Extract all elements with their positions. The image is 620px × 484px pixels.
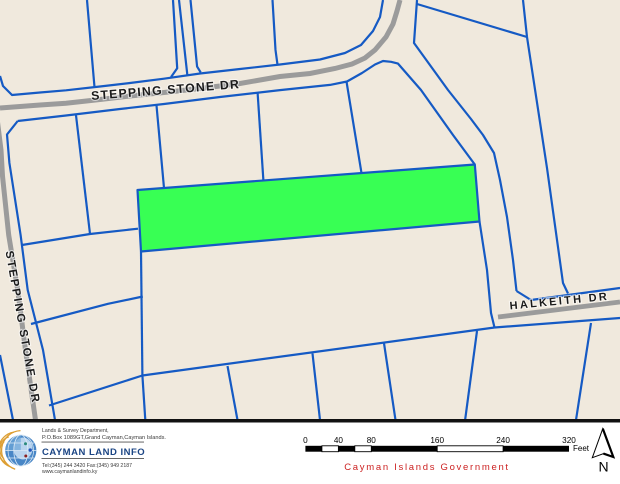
svg-text:240: 240 [496, 436, 510, 445]
svg-text:www.caymanlandinfo.ky: www.caymanlandinfo.ky [42, 469, 98, 475]
svg-text:Lands & Survey Department,: Lands & Survey Department, [42, 428, 109, 434]
svg-text:160: 160 [430, 436, 444, 445]
svg-text:CAYMAN LAND INFO: CAYMAN LAND INFO [42, 447, 145, 458]
svg-text:40: 40 [334, 436, 344, 445]
svg-text:N: N [599, 459, 609, 475]
svg-text:80: 80 [367, 436, 377, 445]
svg-text:0: 0 [303, 436, 308, 445]
svg-text:Feet: Feet [573, 444, 590, 453]
svg-text:P.O.Box 1089GT,Grand Cayman,Ca: P.O.Box 1089GT,Grand Cayman,Cayman Islan… [42, 435, 166, 441]
svg-text:Tel:(345) 244 3420 Fax:(345): Tel:(345) 244 3420 Fax:(345) 949 2187 [42, 463, 132, 469]
svg-text:Cayman Islands Government: Cayman Islands Government [344, 462, 510, 473]
